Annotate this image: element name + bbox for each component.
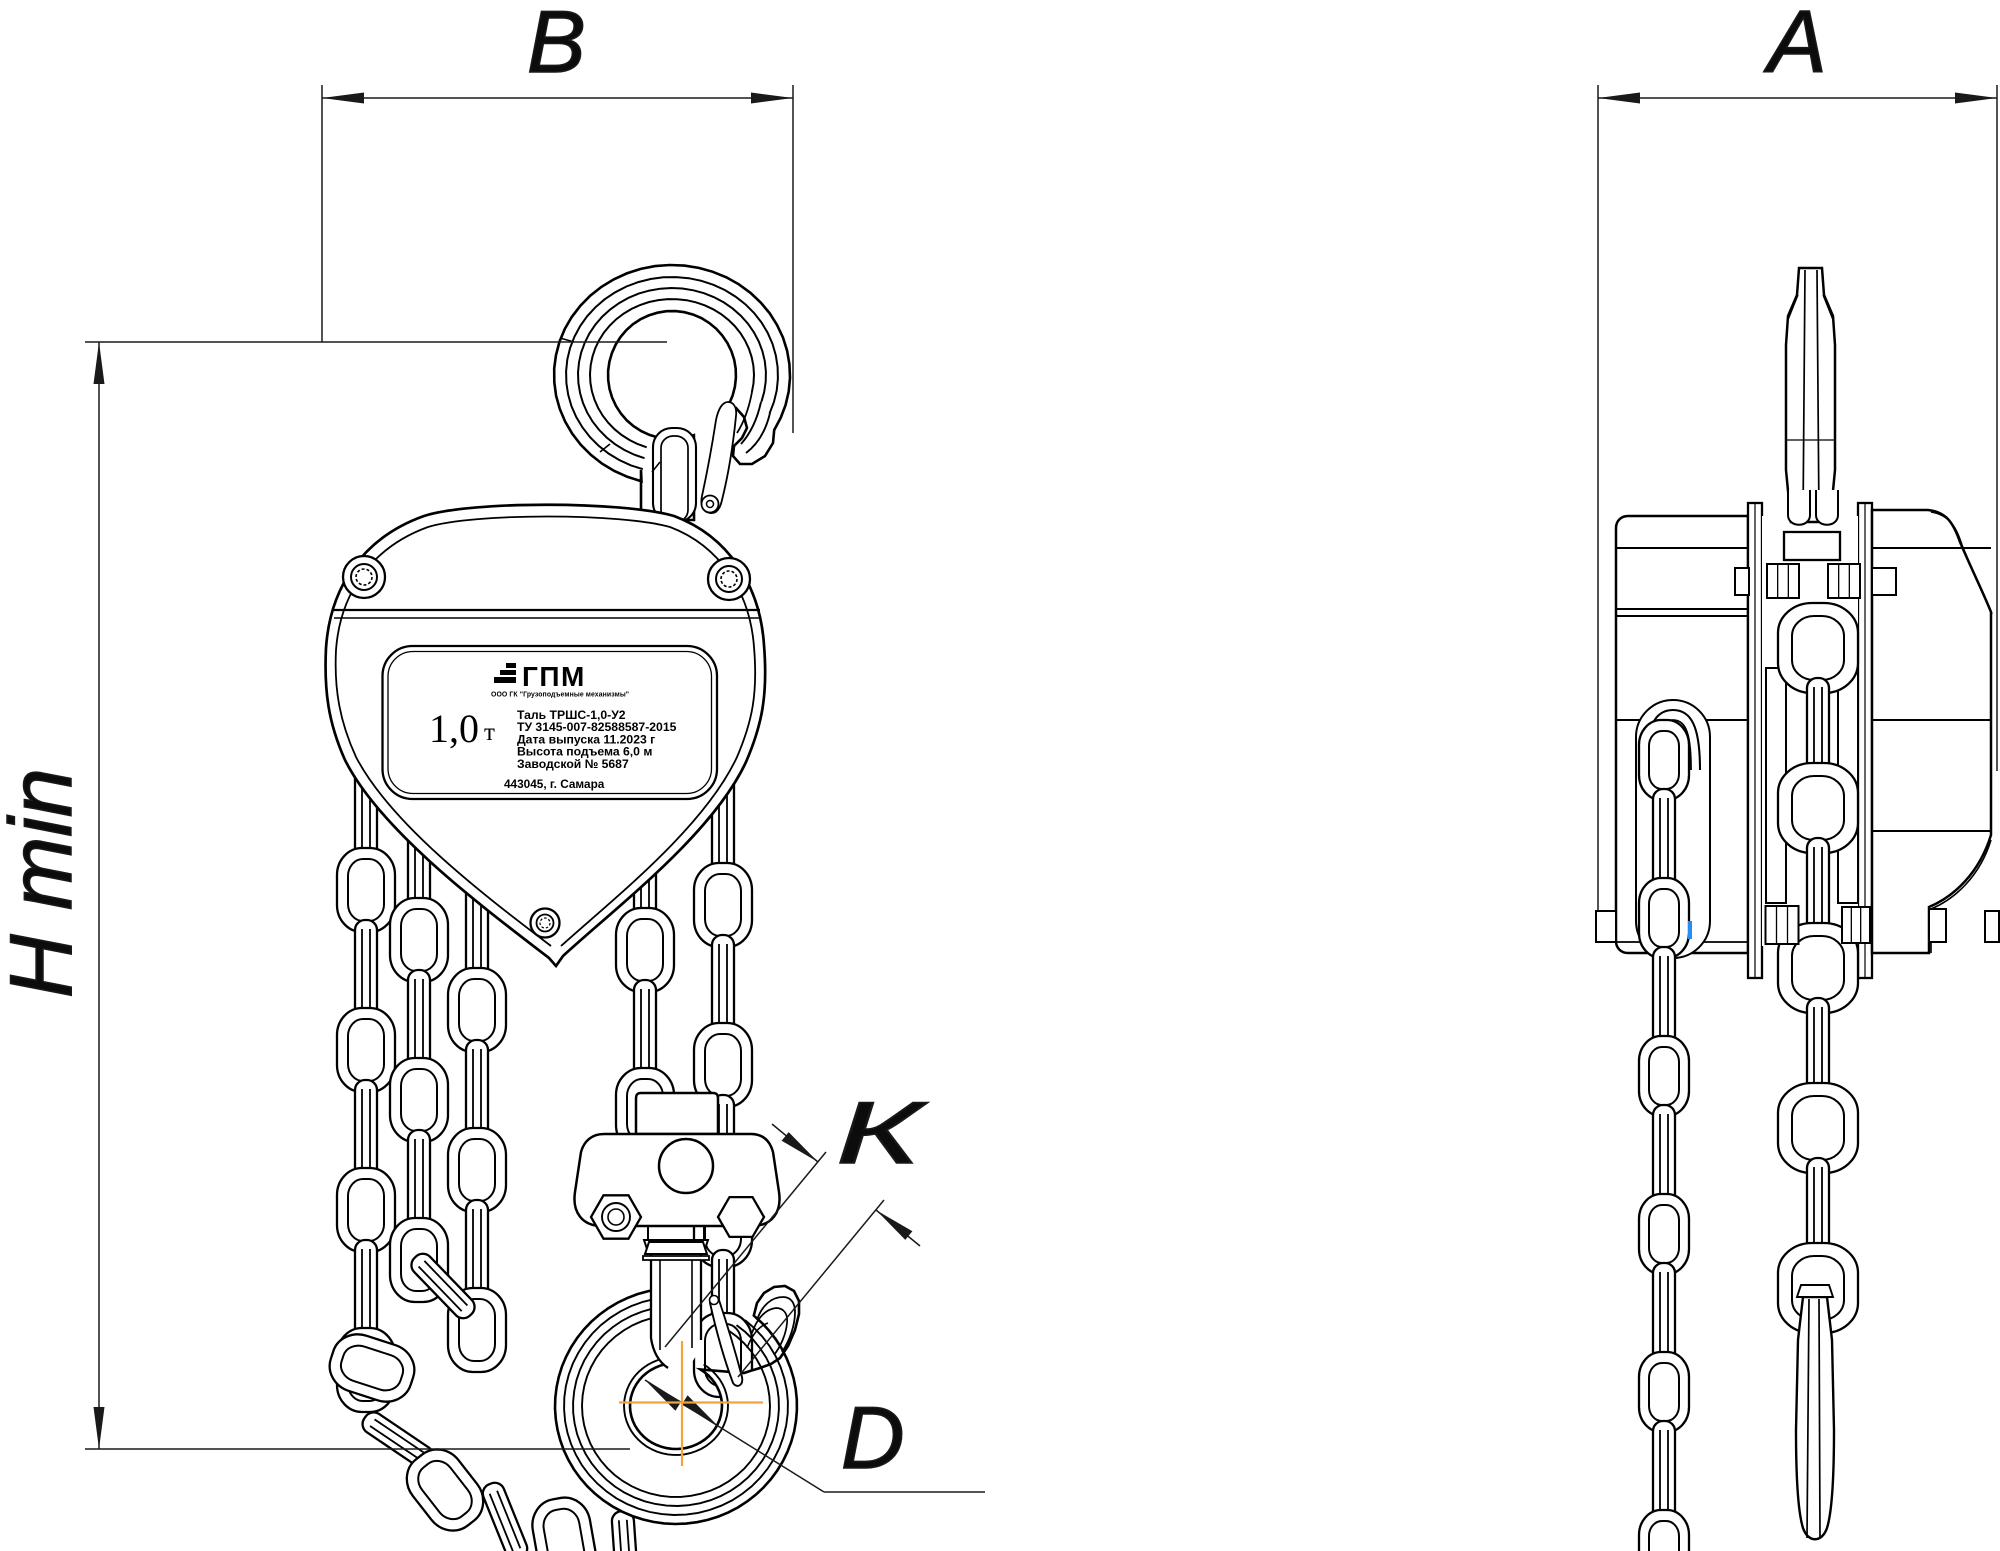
svg-text:ООО ГК "Грузоподъемные механиз: ООО ГК "Грузоподъемные механизмы"	[491, 692, 629, 699]
svg-text:D: D	[841, 1388, 905, 1487]
svg-text:H min: H min	[0, 768, 90, 998]
svg-text:A: A	[1763, 0, 1827, 91]
svg-text:443045, г. Самара: 443045, г. Самара	[504, 777, 605, 791]
svg-text:К: К	[836, 1083, 928, 1182]
svg-text:Заводской № 5687: Заводской № 5687	[517, 757, 629, 771]
svg-text:B: B	[527, 0, 586, 91]
svg-text:т: т	[484, 719, 495, 746]
svg-text:1,0: 1,0	[429, 706, 479, 751]
svg-text:ГПМ: ГПМ	[522, 661, 586, 692]
